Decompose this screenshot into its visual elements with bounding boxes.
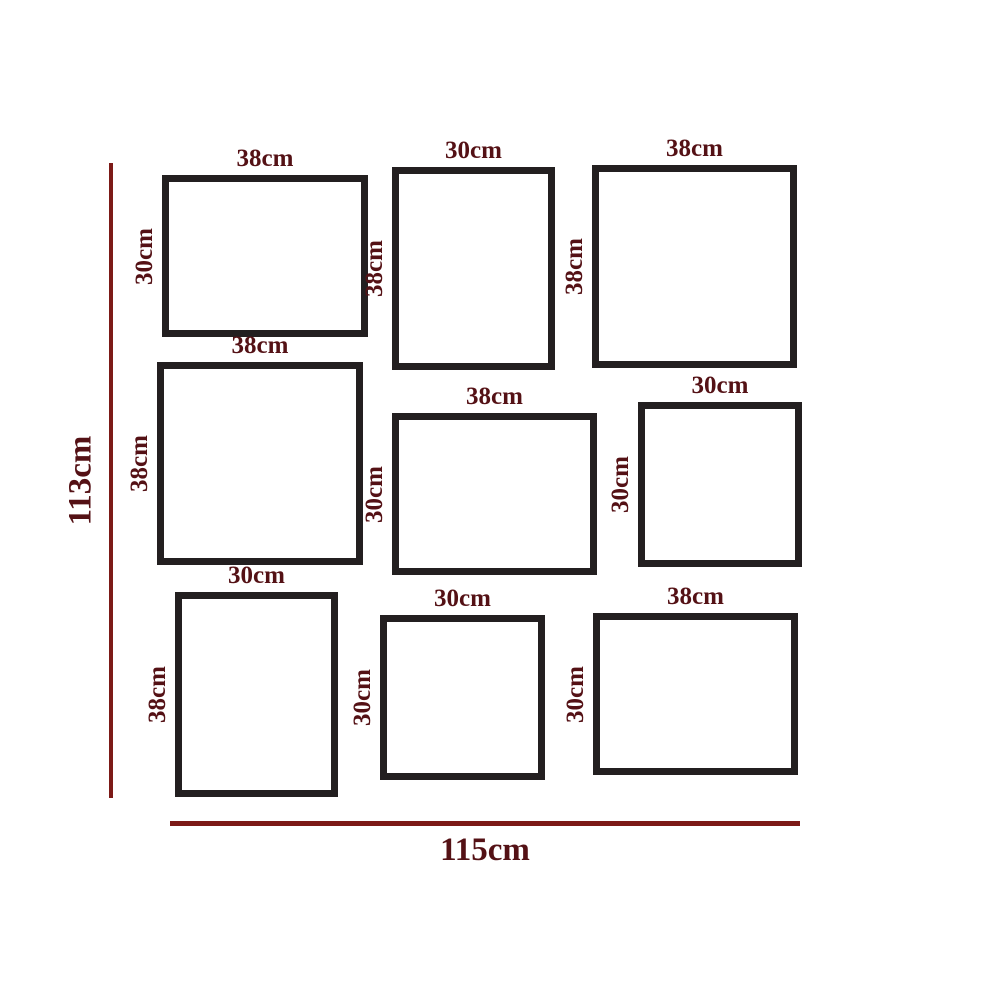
frame-middle-left-height-label: 38cm [127,435,152,492]
frame-set-dimension-diagram: 113cm 115cm 38cm30cm30cm38cm38cm38cm38cm… [0,0,1000,1000]
frame-top-right-width-label: 38cm [592,136,797,161]
frame-middle-center-height-label-box: 30cm [359,413,389,575]
frame-middle-left-width-label: 38cm [157,333,363,358]
frame-top-left [162,175,368,337]
frame-middle-center [392,413,597,575]
frame-middle-left-height-label-box: 38cm [124,362,154,565]
frame-bottom-left-height-label-box: 38cm [142,592,172,797]
frame-middle-left [157,362,363,565]
frame-bottom-left-width-label: 30cm [175,563,338,588]
frame-middle-right [638,402,802,567]
frame-bottom-right-height-label: 30cm [563,666,588,723]
frame-middle-right-height-label: 30cm [608,456,633,513]
frame-bottom-right-width-label: 38cm [593,584,798,609]
frame-bottom-right [593,613,798,775]
frame-middle-right-width-label: 30cm [638,373,802,398]
overall-width-label: 115cm [170,834,800,867]
frame-top-left-height-label: 30cm [132,228,157,285]
overall-height-label: 113cm [65,436,98,526]
vertical-dimension-label-box: 113cm [55,163,107,798]
frame-bottom-right-height-label-box: 30cm [560,613,590,775]
frame-top-middle-height-label-box: 38cm [359,167,389,370]
frame-bottom-left-height-label: 38cm [145,666,170,723]
frame-top-left-height-label-box: 30cm [129,175,159,337]
frame-top-left-width-label: 38cm [162,146,368,171]
frame-bottom-left [175,592,338,797]
frame-middle-center-height-label: 30cm [362,466,387,523]
frame-top-middle-height-label: 38cm [362,240,387,297]
frame-middle-right-height-label-box: 30cm [605,402,635,567]
frame-top-middle-width-label: 30cm [392,138,555,163]
frame-top-middle [392,167,555,370]
frame-bottom-middle-height-label-box: 30cm [347,615,377,780]
frame-bottom-middle-width-label: 30cm [380,586,545,611]
vertical-dimension-line [109,163,113,798]
frame-top-right-height-label: 38cm [562,238,587,295]
frame-bottom-middle-height-label: 30cm [350,669,375,726]
frame-top-right-height-label-box: 38cm [559,165,589,368]
frame-middle-center-width-label: 38cm [392,384,597,409]
frame-top-right [592,165,797,368]
horizontal-dimension-line [170,821,800,826]
frame-bottom-middle [380,615,545,780]
